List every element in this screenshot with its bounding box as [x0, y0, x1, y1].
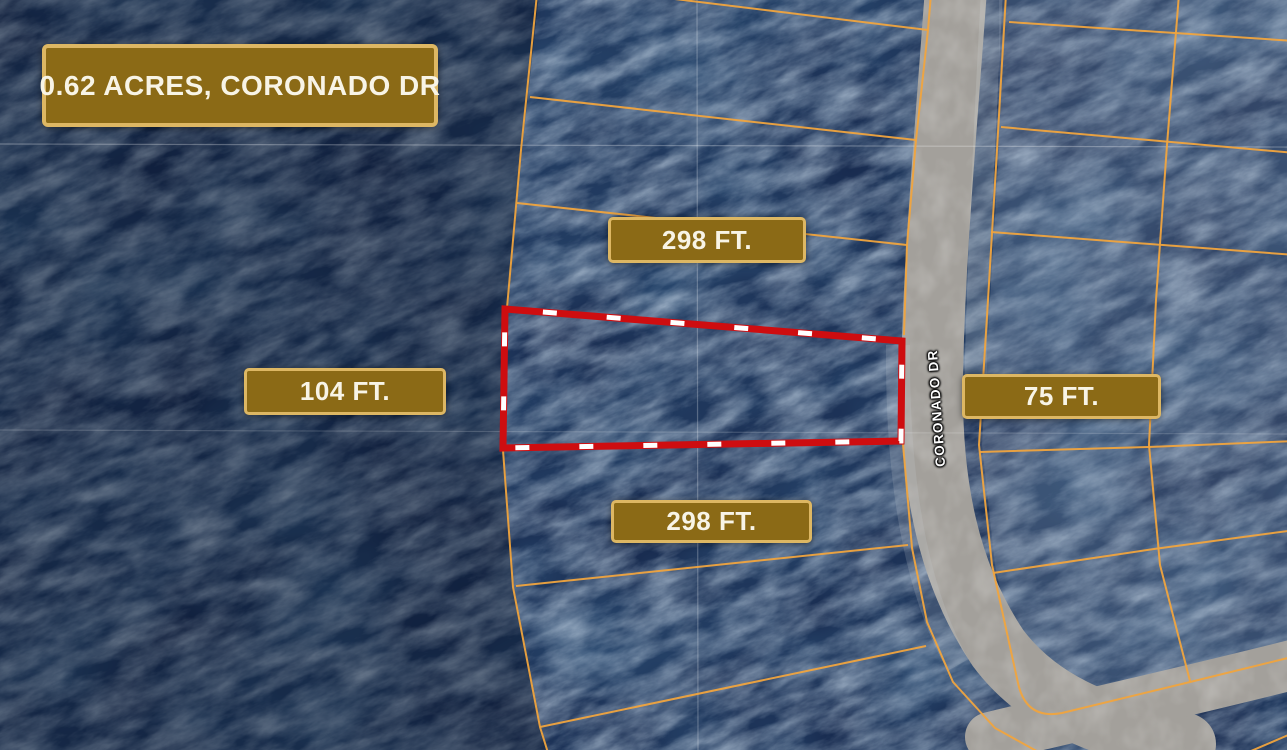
- dimension-label-bottom: 298 FT.: [611, 500, 812, 543]
- dimension-label-top: 298 FT.: [608, 217, 806, 263]
- dimension-label-right: 75 FT.: [962, 374, 1161, 419]
- title-badge: 0.62 ACRES, CORONADO DR: [42, 44, 438, 127]
- aerial-parcel-map: CORONADO DR 0.62 ACRES, CORONADO DR 298 …: [0, 0, 1287, 750]
- dimension-label-left: 104 FT.: [244, 368, 446, 415]
